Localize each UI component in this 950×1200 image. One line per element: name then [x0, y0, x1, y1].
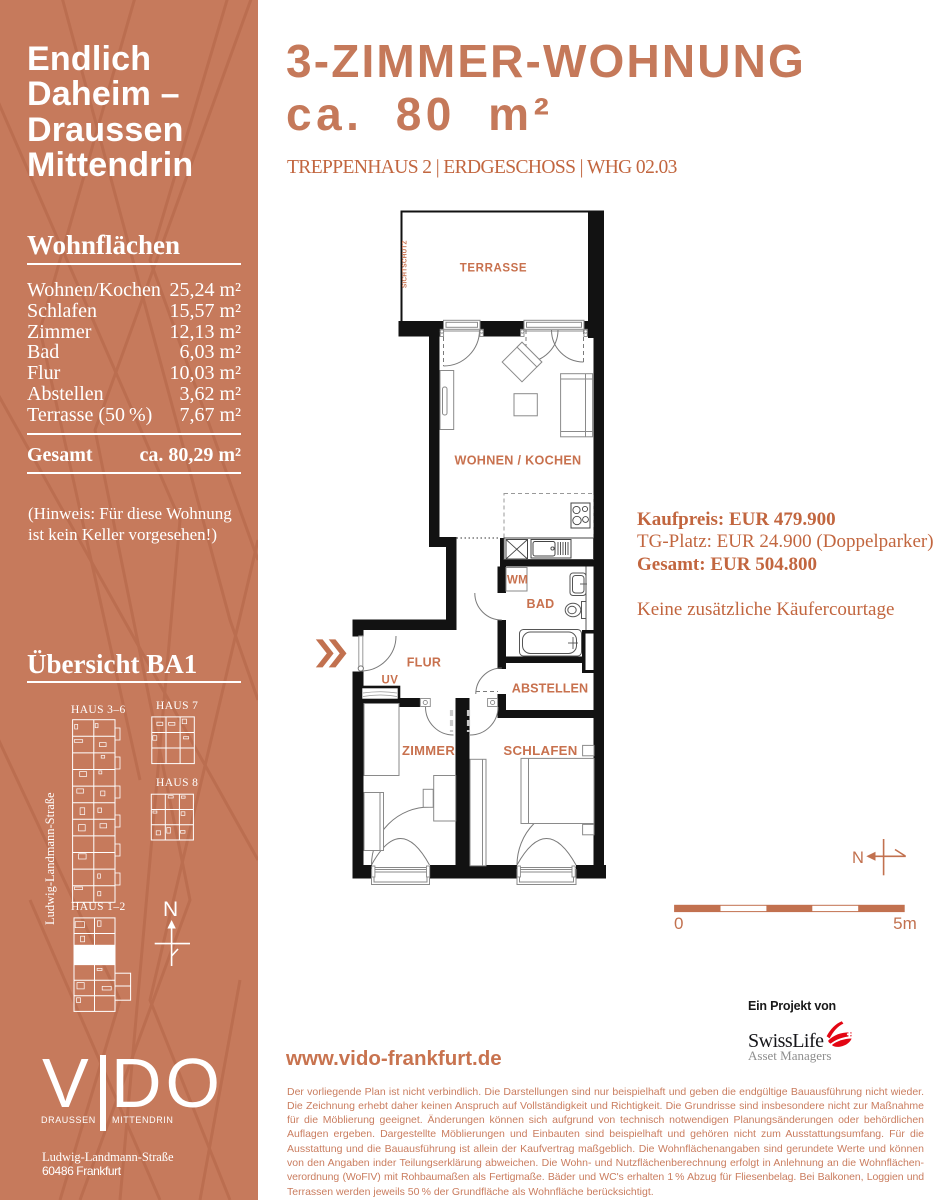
- svg-text:SCHLAFEN: SCHLAFEN: [503, 743, 577, 758]
- svg-text:WOHNEN / KOCHEN: WOHNEN / KOCHEN: [455, 454, 582, 468]
- svg-text:SICHTSCHUTZ: SICHTSCHUTZ: [402, 240, 409, 288]
- svg-text:TERRASSE: TERRASSE: [460, 263, 527, 275]
- svg-text:UV: UV: [382, 675, 399, 687]
- svg-text:ABSTELLEN: ABSTELLEN: [512, 681, 588, 695]
- svg-text:ZIMMER: ZIMMER: [402, 743, 455, 758]
- svg-text:FLUR: FLUR: [407, 656, 442, 670]
- svg-text:5m: 5m: [893, 914, 917, 933]
- svg-text:N: N: [852, 849, 864, 867]
- svg-text:BAD: BAD: [527, 597, 555, 611]
- svg-text:0: 0: [674, 914, 683, 933]
- svg-text:N: N: [163, 898, 178, 921]
- svg-text:WM: WM: [507, 575, 528, 587]
